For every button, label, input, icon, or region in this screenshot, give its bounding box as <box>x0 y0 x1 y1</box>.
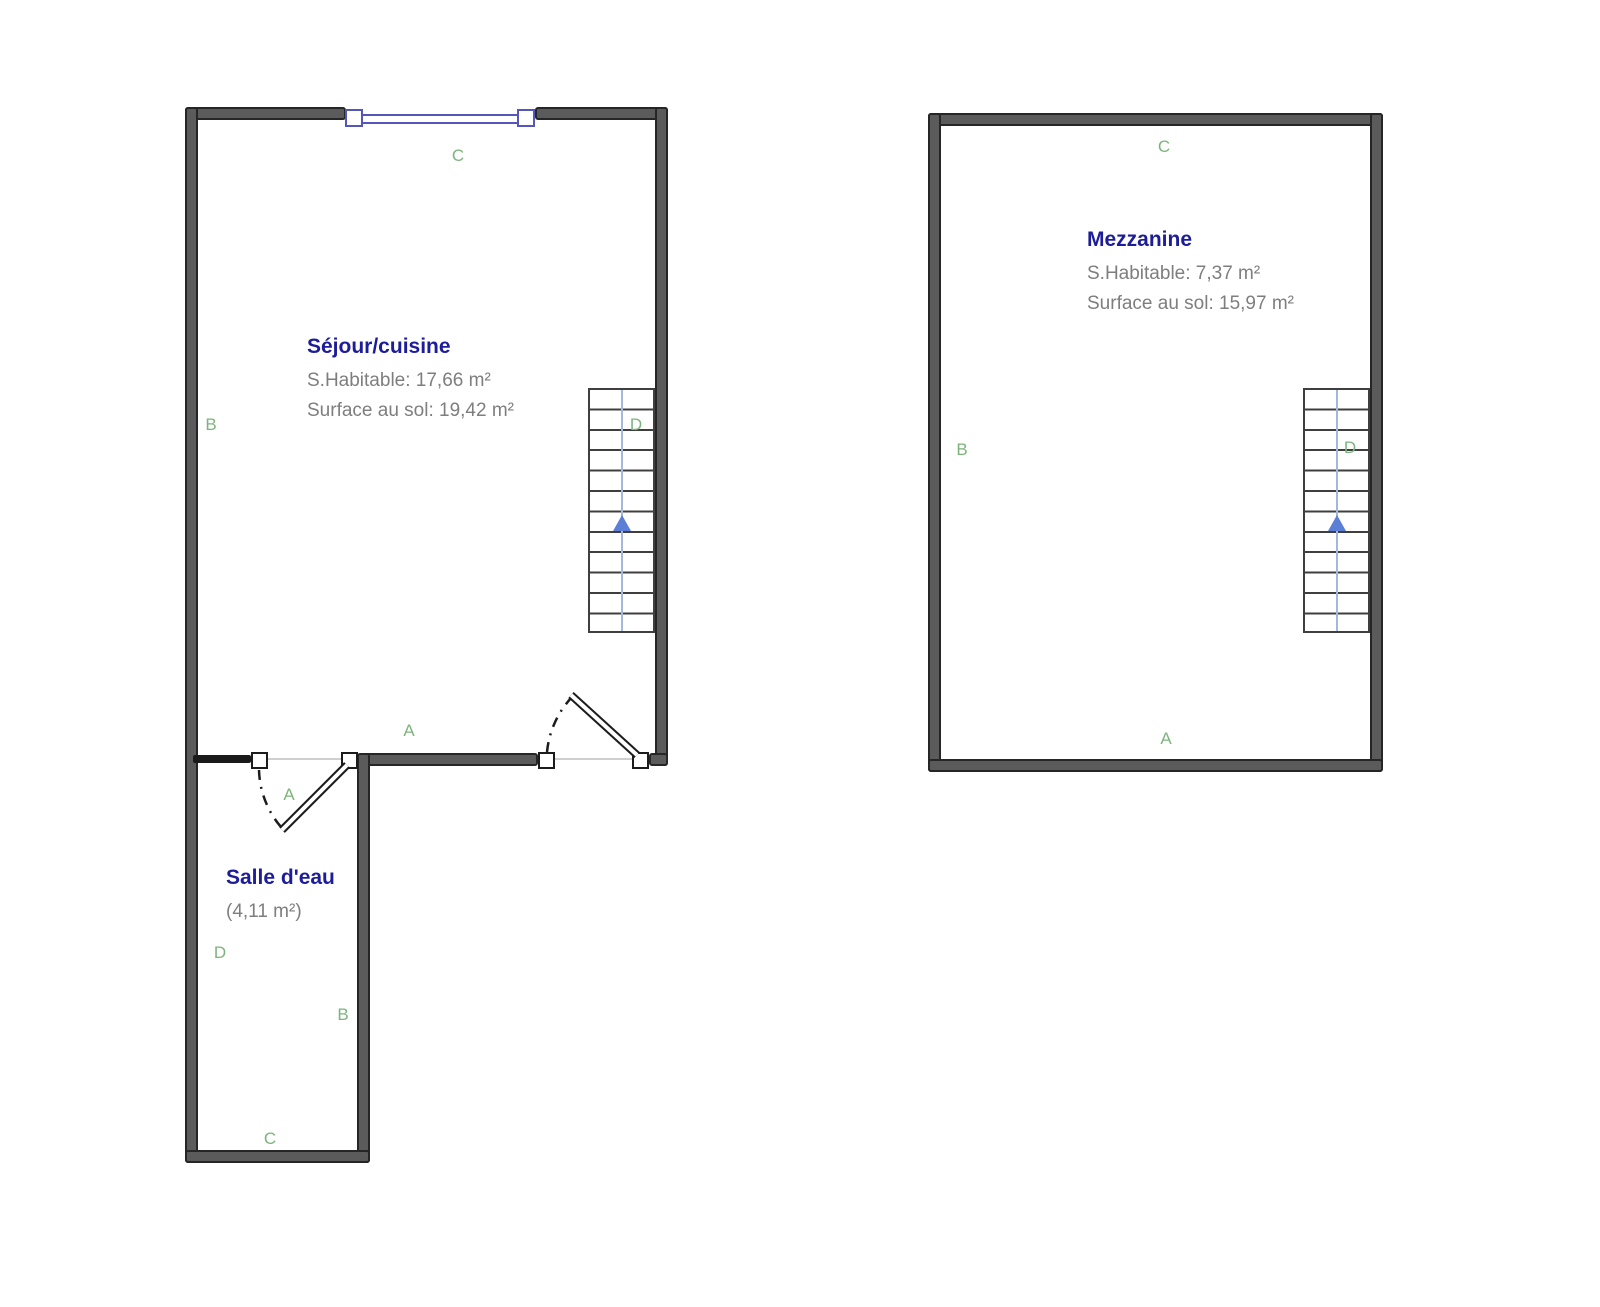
wall-label-c-sde-bottom: C <box>264 1129 276 1149</box>
wall-label-d-stairs: D <box>630 415 642 435</box>
stair-direction-line <box>621 390 623 631</box>
room-title: Mezzanine <box>1087 228 1294 252</box>
wall-left <box>928 113 941 772</box>
wall-label-d-sde-left: D <box>214 943 226 963</box>
door-frame-icon <box>251 752 268 769</box>
room-label-mezzanine: Mezzanine S.Habitable: 7,37 m² Surface a… <box>1087 228 1294 319</box>
wall-bottom-partition-thin <box>193 755 251 763</box>
stair-up-arrow-icon <box>1328 515 1346 531</box>
stair-direction-line <box>1336 390 1338 631</box>
wall-bottom-segment-middle <box>359 753 538 766</box>
door-swing-arc-entrance <box>547 697 572 752</box>
staircase-ground <box>588 388 655 633</box>
wall-label-c-top: C <box>1158 137 1170 157</box>
door-threshold-salle-deau <box>268 758 341 760</box>
door-leaf-outline <box>571 695 637 755</box>
wall-top-segment-right <box>535 107 668 120</box>
wall-salle-deau-right <box>357 753 370 1163</box>
wall-label-a-door: A <box>283 785 294 805</box>
window-icon <box>354 114 526 124</box>
door-leaf-entrance <box>571 695 637 755</box>
wall-label-a-bottom: A <box>403 721 414 741</box>
wall-bottom-segment-right <box>649 753 668 766</box>
door-swing-overlay <box>0 0 1600 1307</box>
door-frame-icon <box>632 752 649 769</box>
wall-bottom <box>928 759 1383 772</box>
door-threshold-entrance <box>555 758 632 760</box>
room-title: Séjour/cuisine <box>307 335 514 359</box>
room-title: Salle d'eau <box>226 866 335 890</box>
room-area: (4,11 m²) <box>226 897 335 927</box>
floor-plan-canvas: Séjour/cuisine S.Habitable: 17,66 m² Sur… <box>0 0 1600 1307</box>
wall-label-a-bottom: A <box>1160 729 1171 749</box>
wall-right <box>655 107 668 766</box>
wall-left <box>185 107 198 1163</box>
room-area-sol: Surface au sol: 15,97 m² <box>1087 289 1294 319</box>
room-area-habitable: S.Habitable: 17,66 m² <box>307 366 514 396</box>
wall-top-segment-left <box>185 107 346 120</box>
wall-label-b-left: B <box>205 415 216 435</box>
door-frame-icon <box>341 752 358 769</box>
wall-right <box>1370 113 1383 772</box>
wall-label-c-top: C <box>452 146 464 166</box>
staircase-mezzanine <box>1303 388 1370 633</box>
stair-up-arrow-icon <box>613 515 631 531</box>
door-swing-arc-salle-deau <box>259 770 281 827</box>
wall-top <box>928 113 1383 126</box>
door-frame-icon <box>538 752 555 769</box>
room-label-salle-deau: Salle d'eau (4,11 m²) <box>226 866 335 927</box>
wall-label-b-left: B <box>956 440 967 460</box>
window-cap-left-icon <box>345 109 363 127</box>
wall-label-d-stairs: D <box>1344 438 1356 458</box>
window-cap-right-icon <box>517 109 535 127</box>
room-label-sejour-cuisine: Séjour/cuisine S.Habitable: 17,66 m² Sur… <box>307 335 514 426</box>
room-area-sol: Surface au sol: 19,42 m² <box>307 396 514 426</box>
wall-salle-deau-bottom <box>185 1150 370 1163</box>
wall-label-b-sde-right: B <box>337 1005 348 1025</box>
room-area-habitable: S.Habitable: 7,37 m² <box>1087 259 1294 289</box>
